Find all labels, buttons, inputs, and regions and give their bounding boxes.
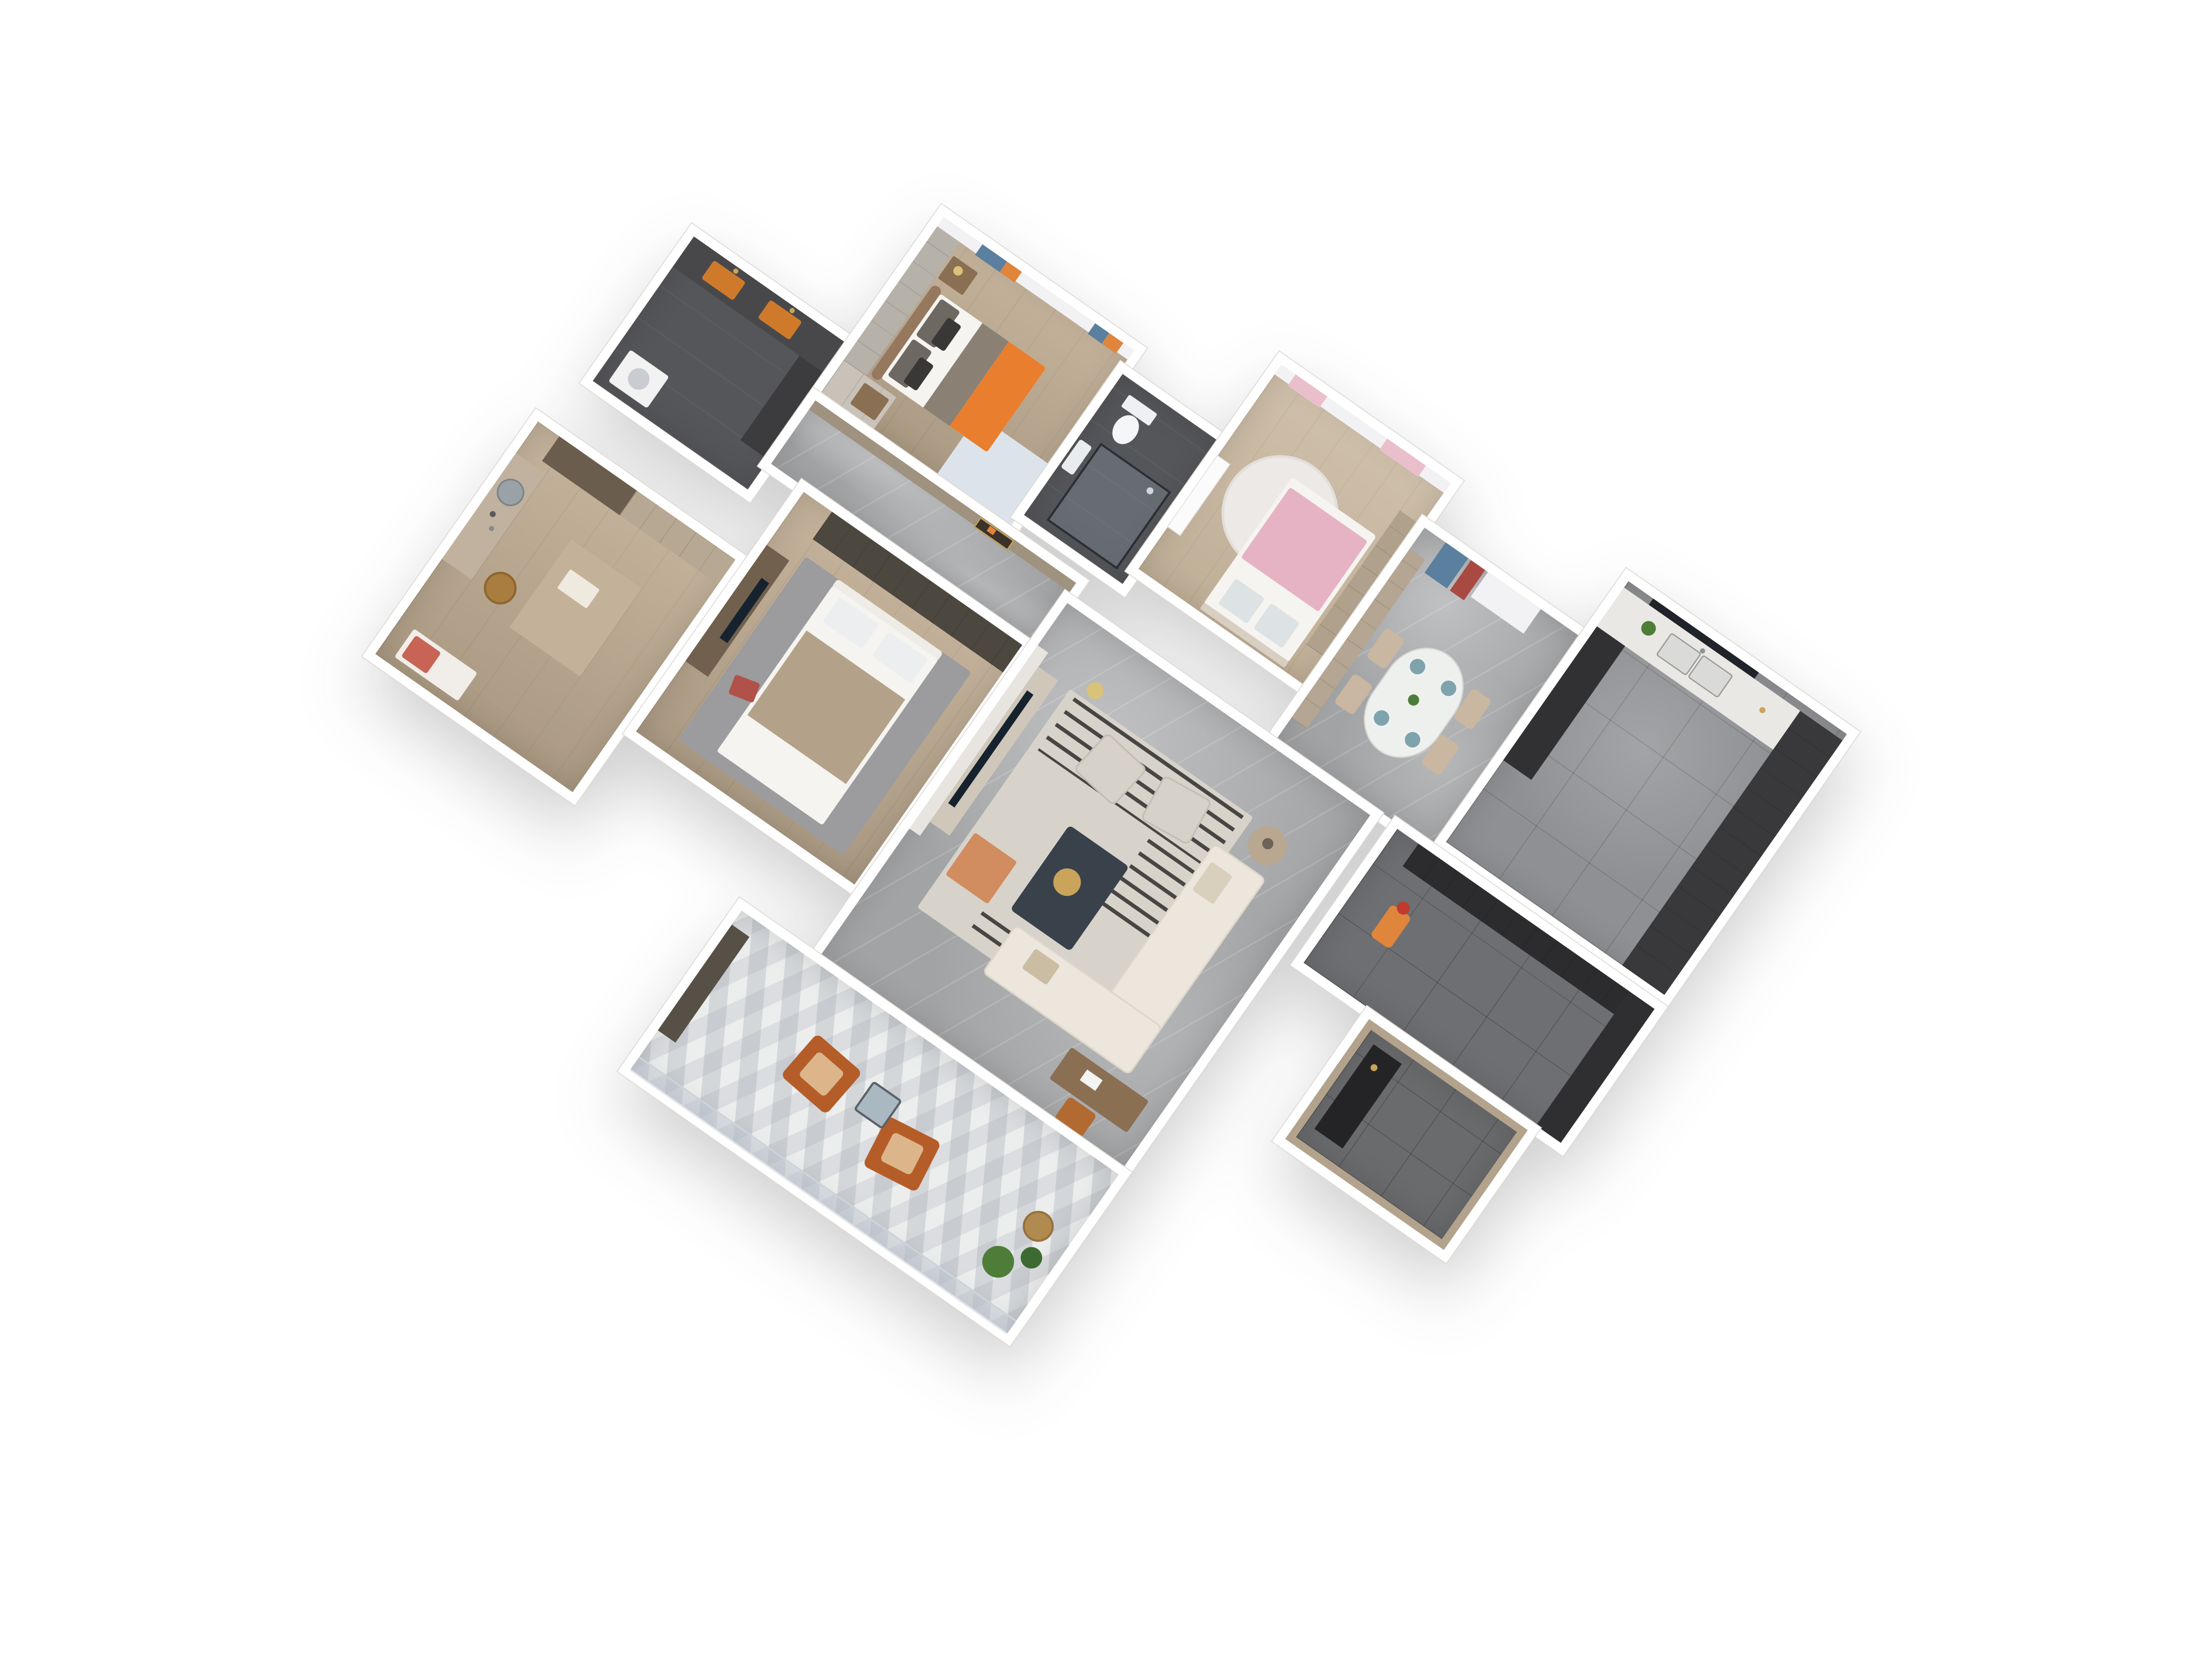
console-cabinet bbox=[1314, 1045, 1402, 1149]
bench bbox=[394, 629, 478, 701]
side-cabinet bbox=[658, 925, 749, 1043]
desk-island bbox=[510, 539, 642, 676]
sheer-curtain bbox=[1471, 572, 1541, 634]
wardrobe bbox=[619, 490, 735, 584]
floor-lamp bbox=[1083, 679, 1107, 703]
tall-cabinet bbox=[1536, 992, 1655, 1143]
apartment-floor-plan bbox=[259, 16, 1847, 1538]
pink-curtain bbox=[1379, 438, 1426, 477]
potted-plant bbox=[1017, 1243, 1046, 1272]
rattan-stool bbox=[478, 565, 523, 611]
wardrobe-dark bbox=[542, 436, 637, 516]
potted-plant bbox=[976, 1239, 1020, 1284]
vanity-counter bbox=[673, 237, 849, 375]
rattan-basket bbox=[1017, 1205, 1060, 1248]
white-background bbox=[0, 0, 2196, 1680]
tall-cabinets bbox=[1622, 711, 1843, 995]
pink-curtain bbox=[1288, 374, 1328, 408]
